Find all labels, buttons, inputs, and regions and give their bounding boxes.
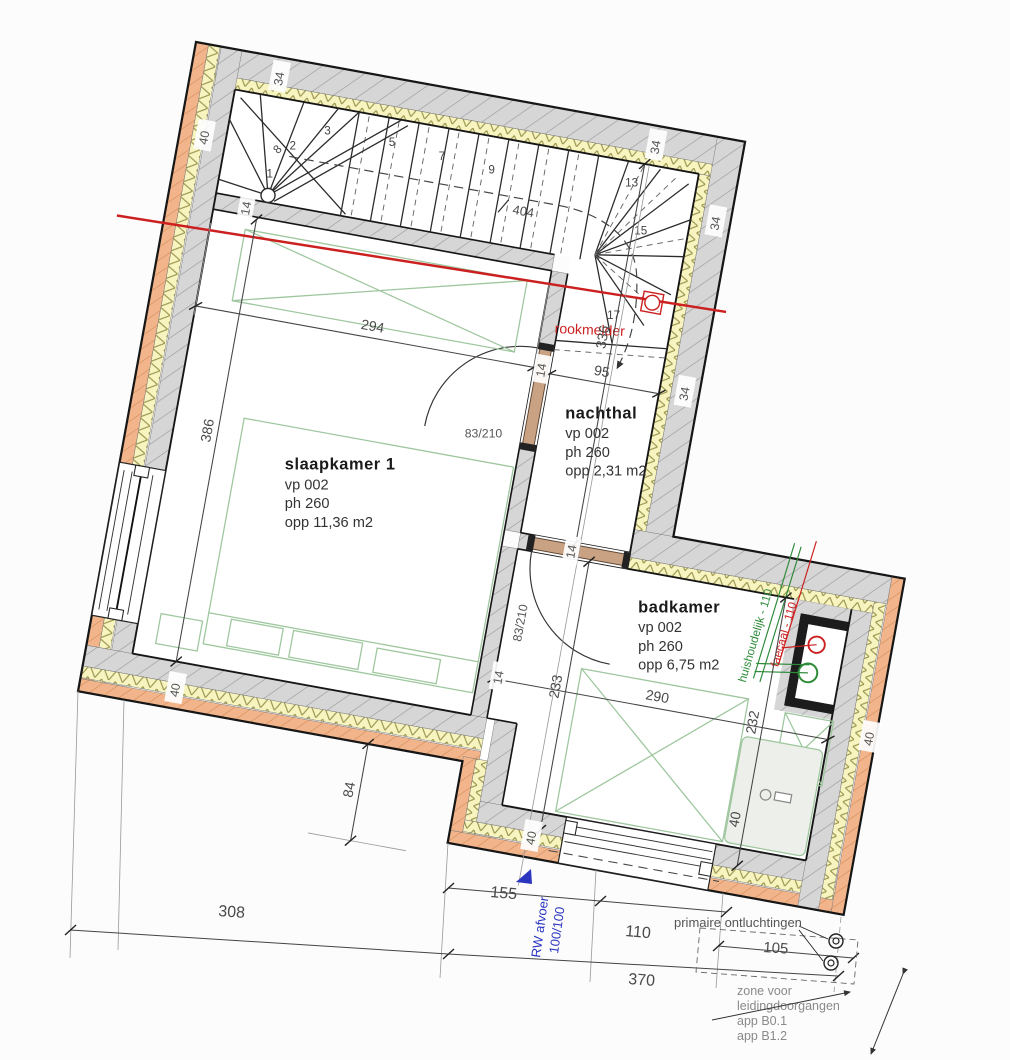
label-34-right-upper: 34 [707, 215, 723, 231]
dim-40-bad-bottom: 40 [725, 810, 744, 828]
dim-155: 155 [490, 884, 518, 903]
label-14-bad-door-wall: 14 [563, 543, 579, 559]
nachthal-opp: opp 2,31 m2 [565, 464, 646, 480]
badkamer-vp: vp 002 [638, 620, 682, 636]
door-label-slaapkamer: 83/210 [465, 427, 503, 441]
label-14-lower-wall: 14 [490, 669, 506, 685]
dim-105: 105 [763, 939, 789, 958]
tread-2: 2 [289, 139, 296, 152]
rw-afvoer-triangle-icon [516, 869, 532, 884]
label-40-left: 40 [196, 130, 212, 146]
dim-370: 370 [628, 971, 656, 990]
vent-circle-inner-icon [833, 938, 839, 944]
label-40-bad-bottom-wall: 40 [523, 830, 539, 846]
label-40-slaap-bottom: 40 [167, 682, 183, 698]
zone-note-block: zone voor leidingdoorgangen app B0.1 app… [712, 974, 903, 1054]
tread-1: 1 [267, 167, 274, 180]
slaapkamer-title: slaapkamer 1 [285, 456, 396, 474]
vent-circle-inner-icon-2 [828, 960, 834, 966]
label-40-bad-right: 40 [861, 731, 877, 747]
tread-7: 7 [439, 150, 446, 163]
nachthal-vp: vp 002 [565, 426, 609, 442]
nachthal-title: nachthal [565, 404, 637, 422]
zone-line-2: leidingdoorgangen [737, 999, 840, 1013]
zone-line-4: app B1.2 [737, 1029, 787, 1043]
slaapkamer-opp: opp 11,36 m2 [285, 515, 373, 531]
label-14-stair-wall: 14 [238, 200, 254, 216]
primaire-ontluchtingen-label: primaire ontluchtingen [674, 915, 802, 930]
nachthal-ph: ph 260 [565, 445, 610, 461]
dim-95: 95 [593, 362, 611, 381]
vent-circle-icon-2 [824, 956, 838, 970]
plan-rotated-group: 1 2 3 5 7 9 13 15 17 8 404 rookmelder hu… [12, 34, 979, 944]
zone-line-1: zone voor [737, 984, 792, 998]
overlay-dim-ticks [65, 883, 859, 981]
floor-plan-canvas: 1 2 3 5 7 9 13 15 17 8 404 rookmelder hu… [0, 0, 1010, 1060]
dim-110: 110 [625, 923, 652, 942]
label-34-right-lower: 34 [676, 386, 692, 402]
slaapkamer-vp: vp 002 [285, 477, 329, 493]
floorplan-page: { "rooms": { "slaapkamer": {"title":"sla… [0, 0, 1010, 1060]
dim-308: 308 [218, 903, 246, 922]
dim-84: 84 [340, 780, 359, 798]
zone-line-3: app B0.1 [737, 1014, 787, 1028]
badkamer-ph: ph 260 [638, 639, 683, 655]
vent-symbols [799, 926, 843, 970]
vent-circle-icon [829, 934, 843, 948]
tread-9: 9 [488, 164, 495, 177]
tread-5: 5 [389, 136, 396, 149]
rw-afvoer-annotation: RW afvoer 100/100 [516, 869, 568, 958]
label-34-top-right: 34 [648, 139, 664, 155]
label-14-slaap-door-wall: 14 [533, 362, 549, 378]
badkamer-title: badkamer [638, 598, 720, 616]
slaapkamer-ph: ph 260 [285, 496, 330, 512]
tread-13: 13 [625, 177, 638, 190]
label-34-top-left: 34 [271, 71, 287, 87]
tread-3: 3 [324, 124, 331, 137]
badkamer-opp: opp 6,75 m2 [638, 658, 719, 674]
